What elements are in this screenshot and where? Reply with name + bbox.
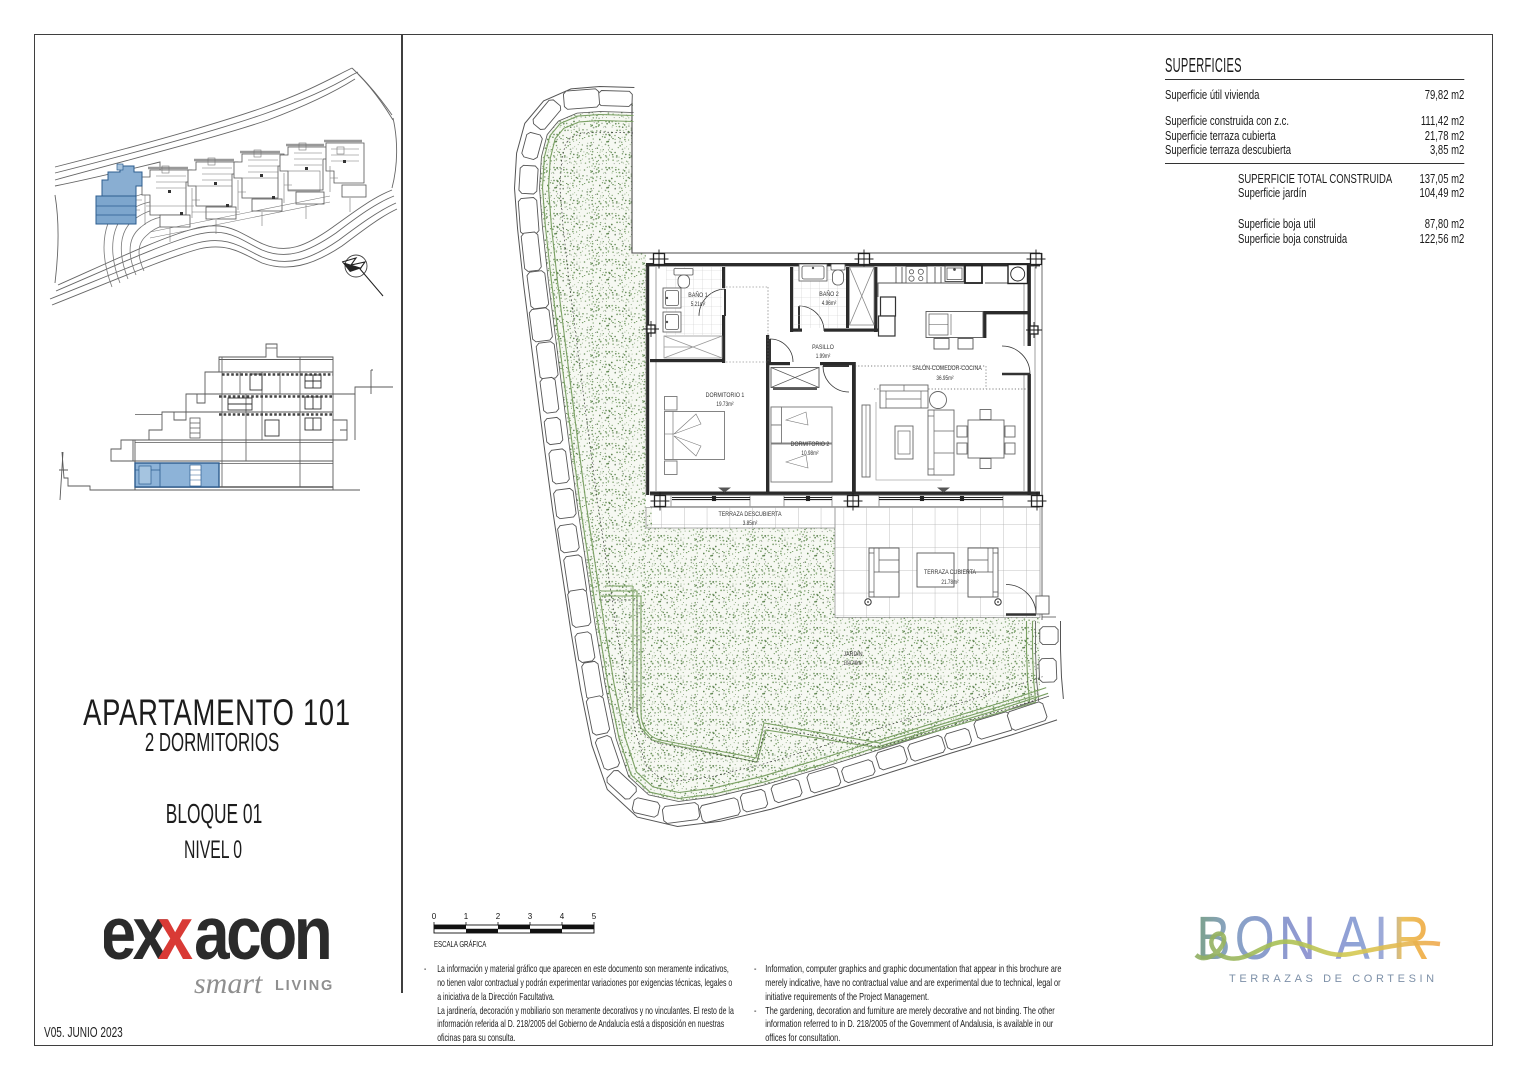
- svg-text:4: 4: [560, 912, 565, 921]
- svg-text:10.98m²: 10.98m²: [801, 451, 818, 458]
- svg-text:PASILLO: PASILLO: [812, 343, 834, 351]
- svg-text:2: 2: [496, 912, 501, 921]
- svg-text:TERRAZAS DE CORTESIN: TERRAZAS DE CORTESIN: [1229, 973, 1438, 985]
- svg-text:JARDÍN: JARDÍN: [843, 650, 862, 658]
- svg-text:3: 3: [528, 912, 533, 921]
- svg-text:5.21m²: 5.21m²: [691, 302, 706, 309]
- svg-text:acon: acon: [194, 895, 329, 975]
- svg-text:DORMITORIO 2: DORMITORIO 2: [791, 440, 830, 448]
- svg-text:BAÑO 2: BAÑO 2: [819, 290, 839, 298]
- svg-text:LIVING: LIVING: [275, 978, 334, 994]
- svg-text:SALÓN-COMEDOR-COCINA: SALÓN-COMEDOR-COCINA: [912, 364, 982, 372]
- svg-text:3.85m²: 3.85m²: [743, 521, 758, 528]
- svg-text:1.99m²: 1.99m²: [816, 354, 831, 361]
- svg-text:4.96m²: 4.96m²: [822, 301, 837, 308]
- svg-text:ESCALA GRÁFICA: ESCALA GRÁFICA: [434, 939, 487, 949]
- svg-text:21.78m²: 21.78m²: [941, 580, 958, 587]
- svg-text:TERRAZA DESCUBIERTA: TERRAZA DESCUBIERTA: [719, 510, 783, 518]
- svg-text:104.49m²: 104.49m²: [843, 661, 863, 668]
- svg-text:BAÑO 1: BAÑO 1: [688, 291, 708, 299]
- svg-text:smart: smart: [194, 967, 263, 1000]
- svg-text:DORMITORIO 1: DORMITORIO 1: [706, 391, 745, 399]
- svg-text:BON AIR: BON AIR: [1196, 904, 1433, 972]
- svg-text:0: 0: [432, 912, 437, 921]
- svg-text:19.73m²: 19.73m²: [716, 402, 733, 409]
- svg-text:TERRAZA CUBIERTA: TERRAZA CUBIERTA: [924, 568, 977, 576]
- svg-text:5: 5: [592, 912, 597, 921]
- svg-text:x: x: [158, 895, 194, 975]
- svg-text:36.95m²: 36.95m²: [936, 376, 953, 383]
- svg-text:1: 1: [464, 912, 469, 921]
